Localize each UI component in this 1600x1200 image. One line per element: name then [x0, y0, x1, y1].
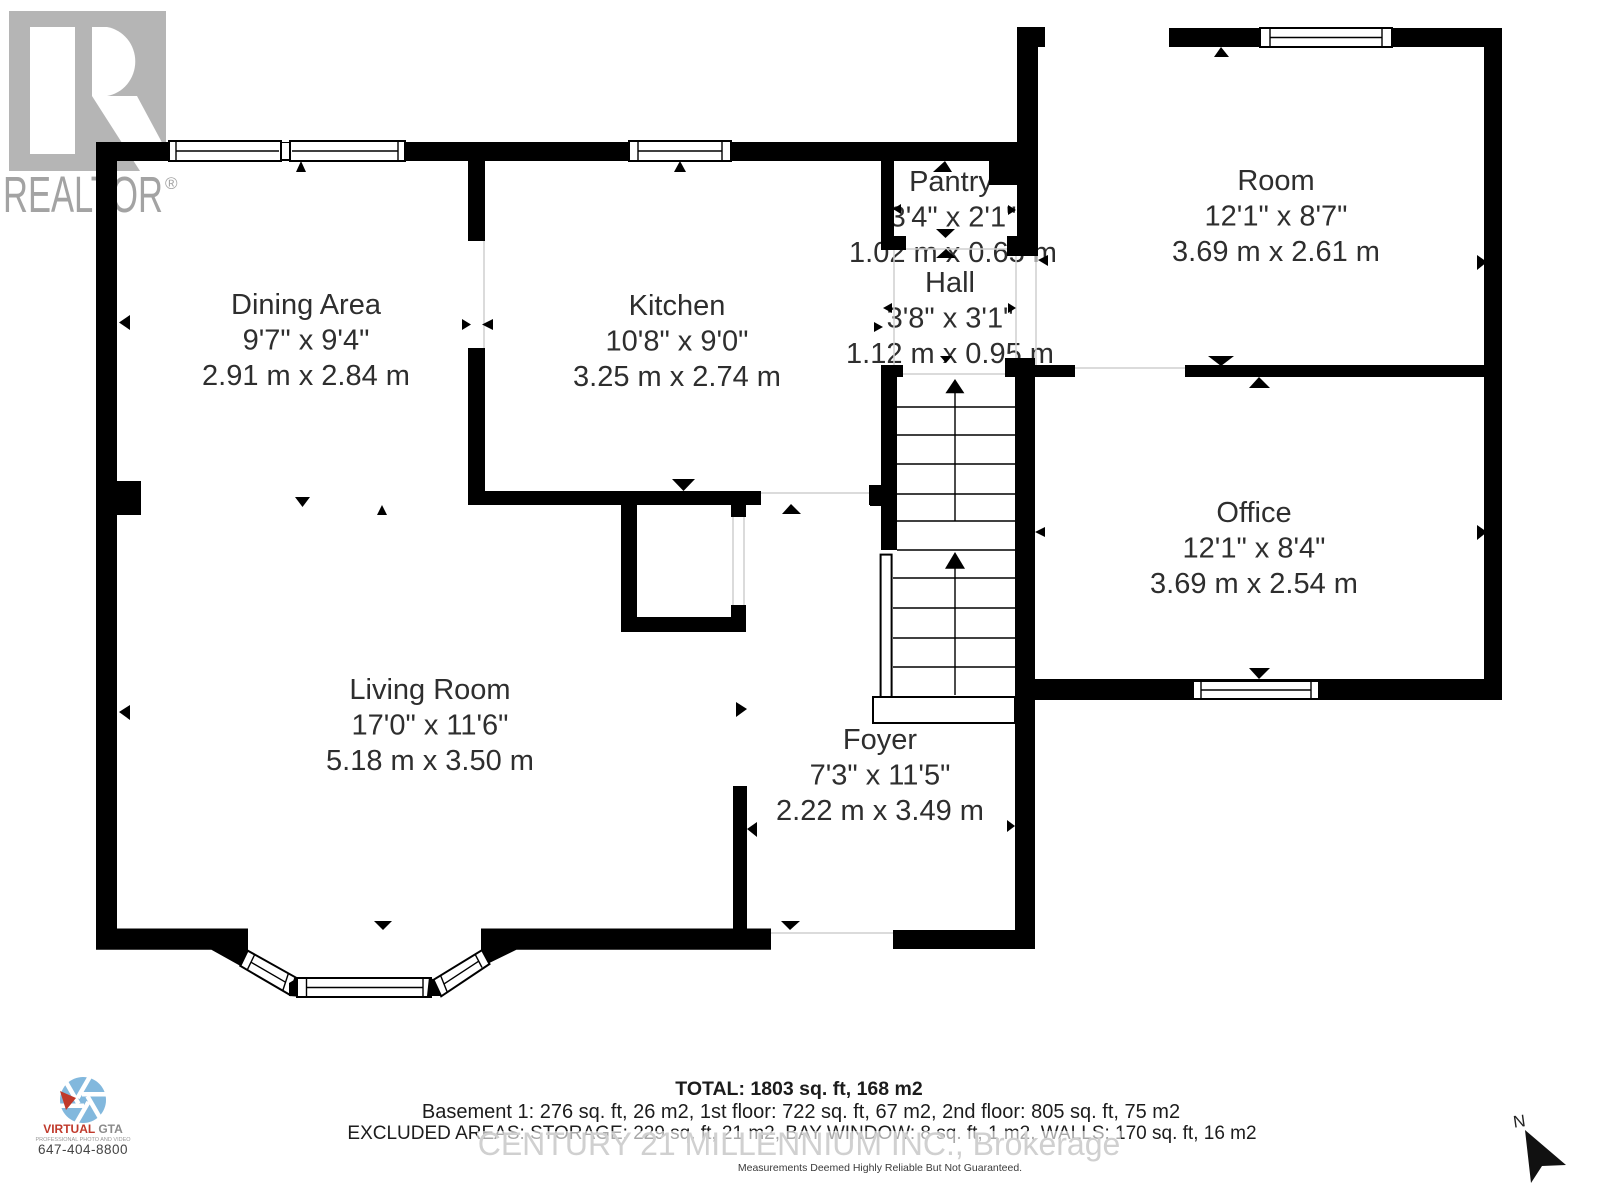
svg-text:VIRTUAL GTA: VIRTUAL GTA: [43, 1122, 123, 1136]
